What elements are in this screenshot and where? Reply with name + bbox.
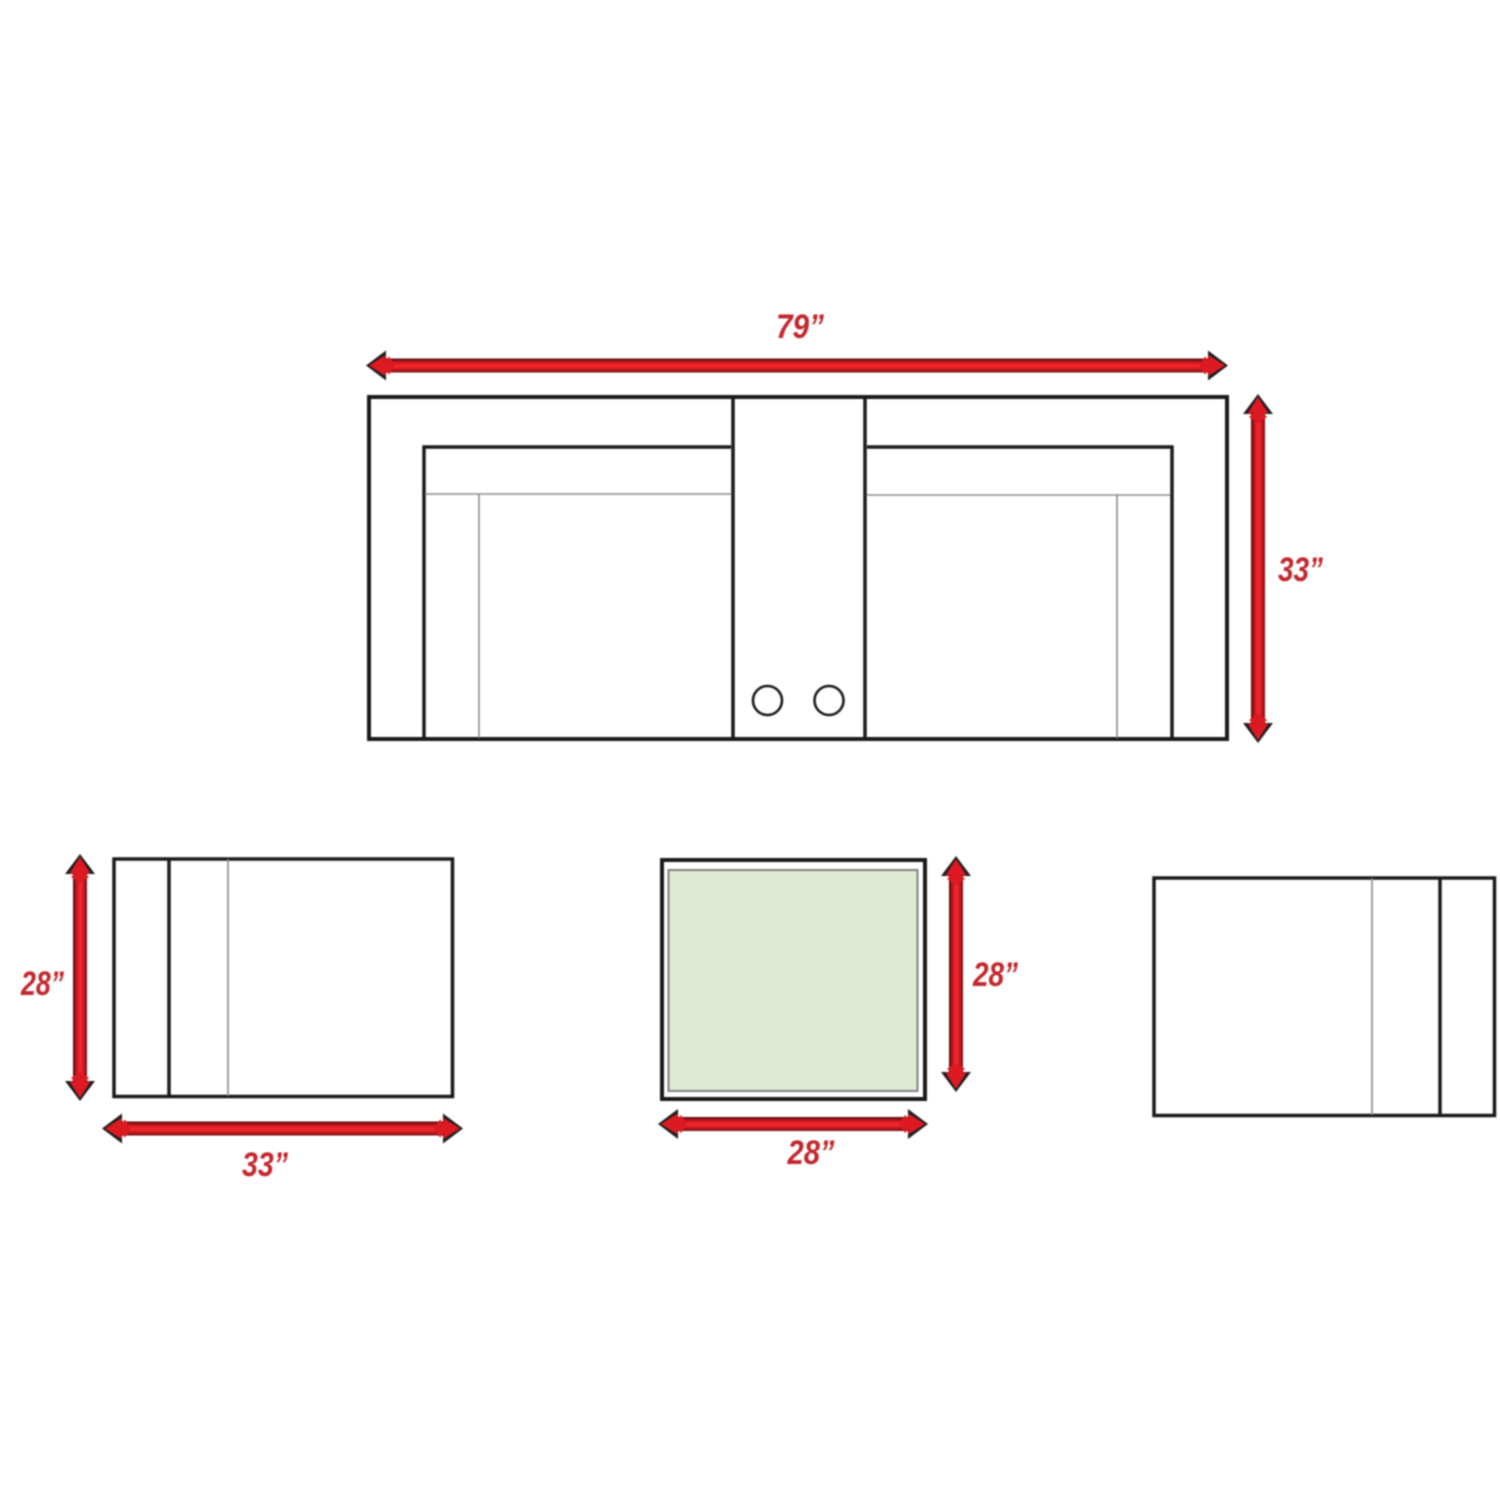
- svg-text:28”: 28”: [20, 965, 64, 1003]
- svg-text:28”: 28”: [787, 1134, 835, 1172]
- svg-text:33”: 33”: [1278, 551, 1323, 589]
- svg-text:79”: 79”: [776, 308, 824, 346]
- svg-text:28”: 28”: [972, 956, 1018, 994]
- svg-text:33”: 33”: [242, 1146, 288, 1184]
